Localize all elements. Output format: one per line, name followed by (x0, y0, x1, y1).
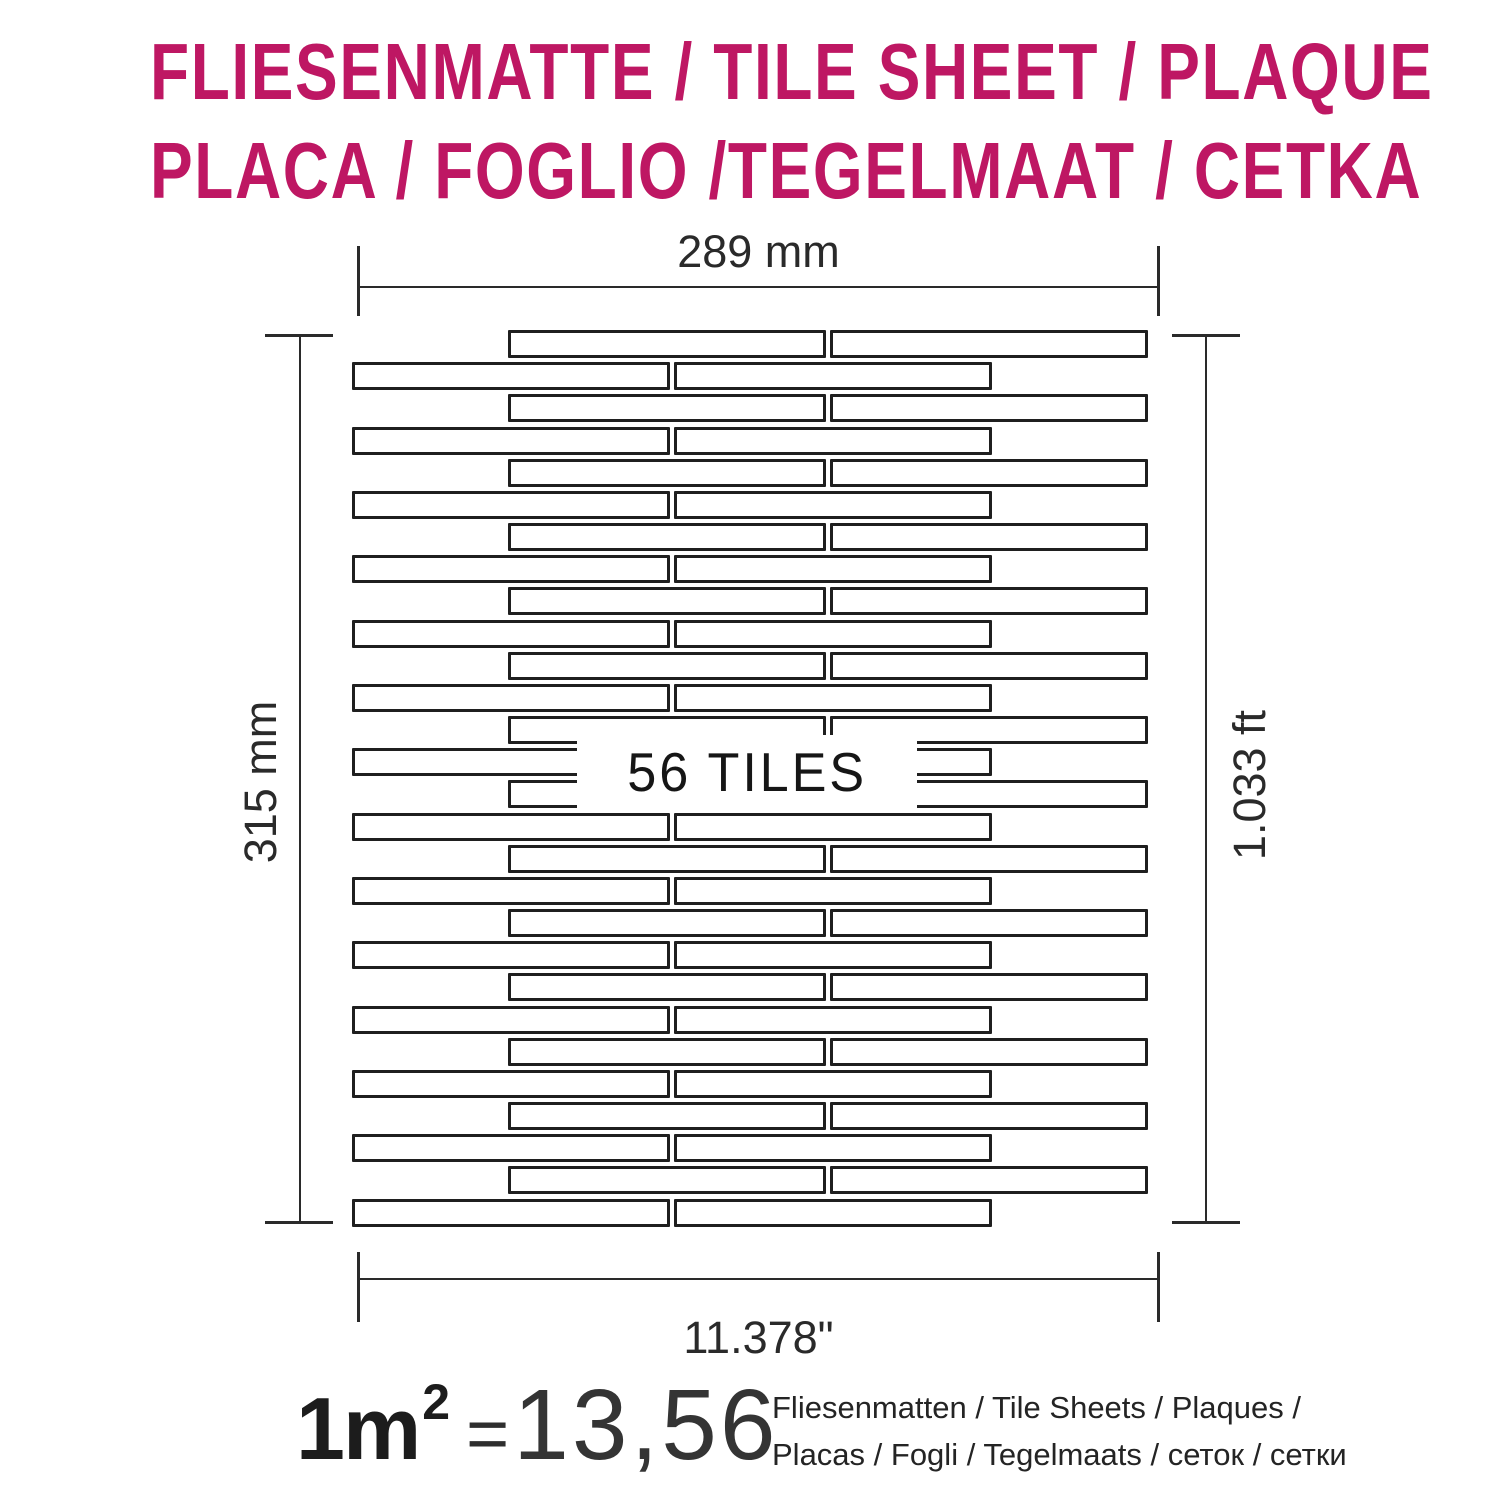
tile-row (352, 1070, 1148, 1098)
tile-count-badge: 56 TILES (577, 735, 917, 809)
tile (674, 620, 992, 648)
dimension-line-bottom (358, 1278, 1159, 1280)
dimension-label-width-in: 11.378" (358, 1312, 1159, 1364)
dimension-tick-top-left (357, 246, 360, 316)
tile (352, 1006, 670, 1034)
dimension-tick-top-right (1157, 246, 1160, 316)
coverage-caption-line1: Fliesenmatten / Tile Sheets / Plaques / (772, 1384, 1347, 1431)
tile (508, 652, 826, 680)
tile (508, 1038, 826, 1066)
tile (352, 362, 670, 390)
tile-row (352, 1006, 1148, 1034)
dimension-label-height-ft: 1.033 ft (1224, 710, 1276, 860)
tile-row (352, 1134, 1148, 1162)
tile-row (352, 362, 1148, 390)
tile (830, 909, 1148, 937)
tile (674, 813, 992, 841)
dimension-label-width-mm: 289 mm (358, 226, 1159, 278)
dimension-line-top (358, 286, 1159, 288)
tile-row (352, 652, 1148, 680)
coverage-caption: Fliesenmatten / Tile Sheets / Plaques / … (772, 1384, 1347, 1478)
tile (508, 845, 826, 873)
tile-row (352, 523, 1148, 551)
tile (352, 555, 670, 583)
tile (674, 491, 992, 519)
tile (830, 973, 1148, 1001)
tile-row (352, 1199, 1148, 1227)
dimension-label-height-mm: 315 mm (235, 701, 287, 864)
page-title-line1: FLIESENMATTE / TILE SHEET / PLAQUE (150, 22, 1350, 121)
dimension-line-left (299, 335, 301, 1224)
tile (352, 684, 670, 712)
tile-row (352, 491, 1148, 519)
tile (674, 1134, 992, 1162)
tile (352, 427, 670, 455)
tile (674, 1006, 992, 1034)
formula-exponent: 2 (422, 1374, 450, 1430)
tile (508, 394, 826, 422)
dimension-line-right (1205, 335, 1207, 1224)
tile-row (352, 330, 1148, 358)
page-title-line2: PLACA / FOGLIO /TEGELMAAT / CETKA (150, 121, 1350, 220)
tile (674, 362, 992, 390)
tile (508, 523, 826, 551)
tile (830, 587, 1148, 615)
tile (674, 427, 992, 455)
tile-row (352, 973, 1148, 1001)
formula-value: 13,56 (513, 1369, 778, 1481)
tile (830, 1166, 1148, 1194)
tile-row (352, 813, 1148, 841)
tile (830, 459, 1148, 487)
tile-count-label: 56 TILES (627, 740, 867, 804)
tile (830, 652, 1148, 680)
tile (830, 394, 1148, 422)
tile (508, 459, 826, 487)
tile (352, 813, 670, 841)
tile (352, 491, 670, 519)
tile (830, 330, 1148, 358)
tile-row (352, 620, 1148, 648)
dimension-tick-left-bottom (265, 1221, 333, 1224)
tile (830, 1102, 1148, 1130)
dimension-tick-right-bottom (1172, 1221, 1240, 1224)
formula-area: 1m (296, 1379, 419, 1478)
tile-row (352, 941, 1148, 969)
tile (508, 330, 826, 358)
coverage-formula: 1m2=13,56 (296, 1368, 778, 1483)
tile-row (352, 394, 1148, 422)
tile (674, 1070, 992, 1098)
tile (352, 941, 670, 969)
tile-row (352, 555, 1148, 583)
tile (508, 909, 826, 937)
tile-sheet-spec-page: FLIESENMATTE / TILE SHEET / PLAQUE PLACA… (0, 0, 1500, 1500)
tile-row (352, 427, 1148, 455)
tile-row (352, 877, 1148, 905)
tile (352, 1070, 670, 1098)
tile (830, 1038, 1148, 1066)
tile-row (352, 1166, 1148, 1194)
tile-row (352, 684, 1148, 712)
tile (674, 555, 992, 583)
tile (352, 877, 670, 905)
formula-equals: = (466, 1392, 509, 1475)
coverage-caption-line2: Placas / Fogli / Tegelmaats / сеток / се… (772, 1431, 1347, 1478)
tile-row (352, 587, 1148, 615)
tile (352, 620, 670, 648)
tile (830, 523, 1148, 551)
dimension-tick-right-top (1172, 334, 1240, 337)
tile (508, 1102, 826, 1130)
tile (674, 684, 992, 712)
tile-row (352, 1102, 1148, 1130)
tile (830, 845, 1148, 873)
tile-row (352, 1038, 1148, 1066)
tile-row (352, 845, 1148, 873)
tile (508, 973, 826, 1001)
tile (352, 1134, 670, 1162)
tile (674, 941, 992, 969)
tile-row (352, 909, 1148, 937)
tile (674, 1199, 992, 1227)
tile (352, 1199, 670, 1227)
page-title: FLIESENMATTE / TILE SHEET / PLAQUE PLACA… (0, 22, 1500, 220)
tile (508, 587, 826, 615)
dimension-tick-left-top (265, 334, 333, 337)
tile (674, 877, 992, 905)
tile-row (352, 459, 1148, 487)
tile (508, 1166, 826, 1194)
